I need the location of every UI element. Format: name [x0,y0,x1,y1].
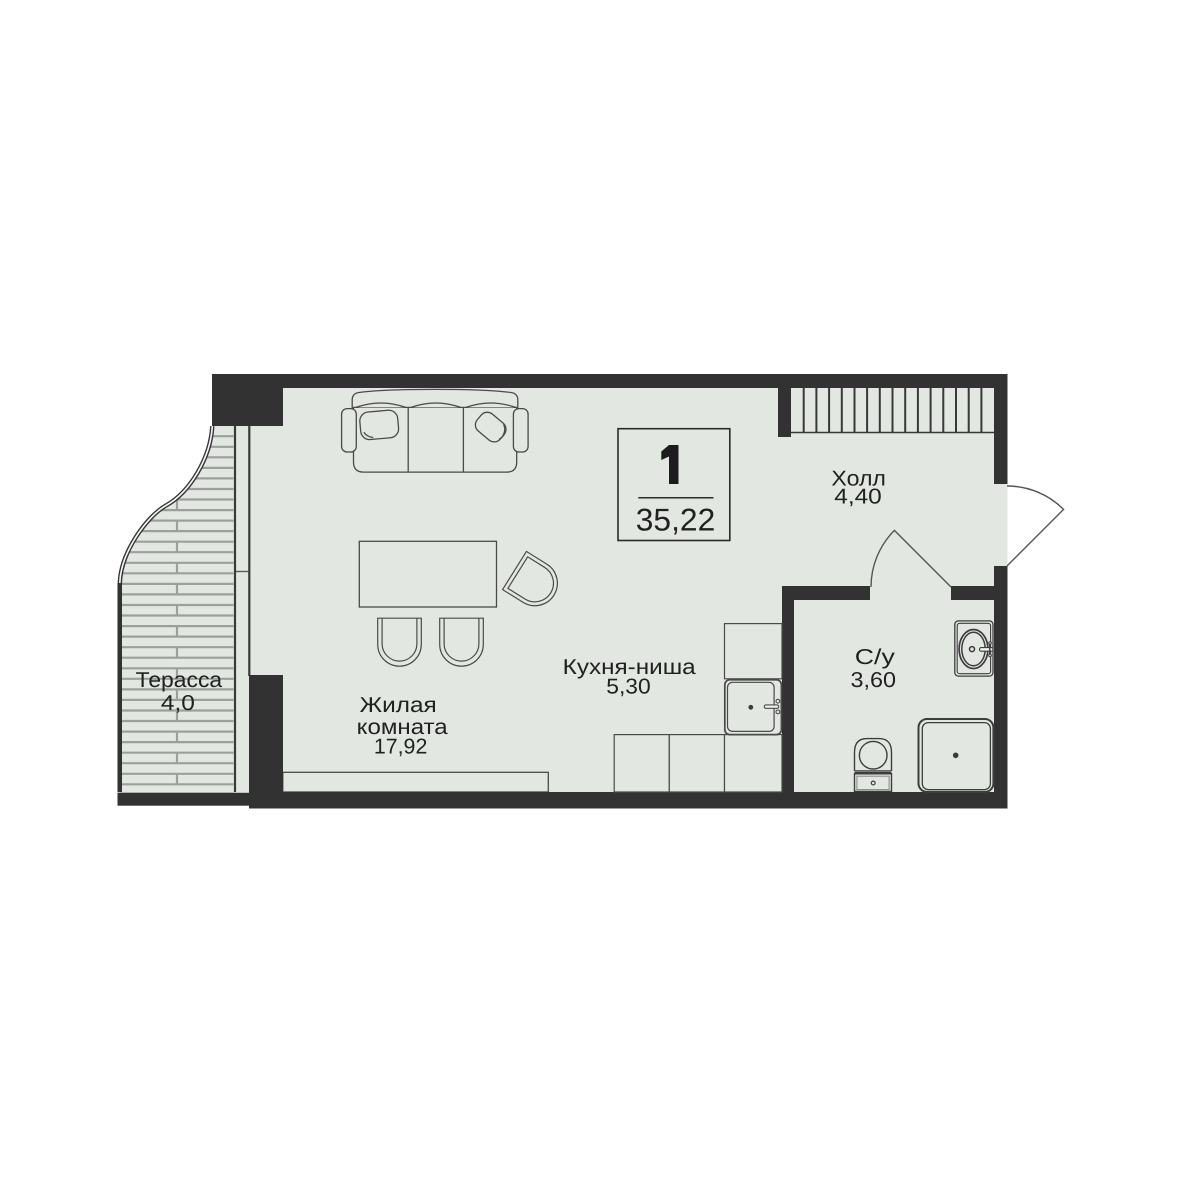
svg-text:5,30: 5,30 [606,675,651,699]
svg-text:4,0: 4,0 [161,691,195,715]
svg-text:4,40: 4,40 [834,485,882,509]
svg-text:17,92: 17,92 [374,735,428,759]
svg-text:Жилая: Жилая [360,693,437,717]
svg-text:3,60: 3,60 [851,668,897,692]
svg-text:С/у: С/у [855,645,895,669]
svg-text:35,22: 35,22 [636,502,716,538]
svg-text:Терасса: Терасса [136,668,223,692]
